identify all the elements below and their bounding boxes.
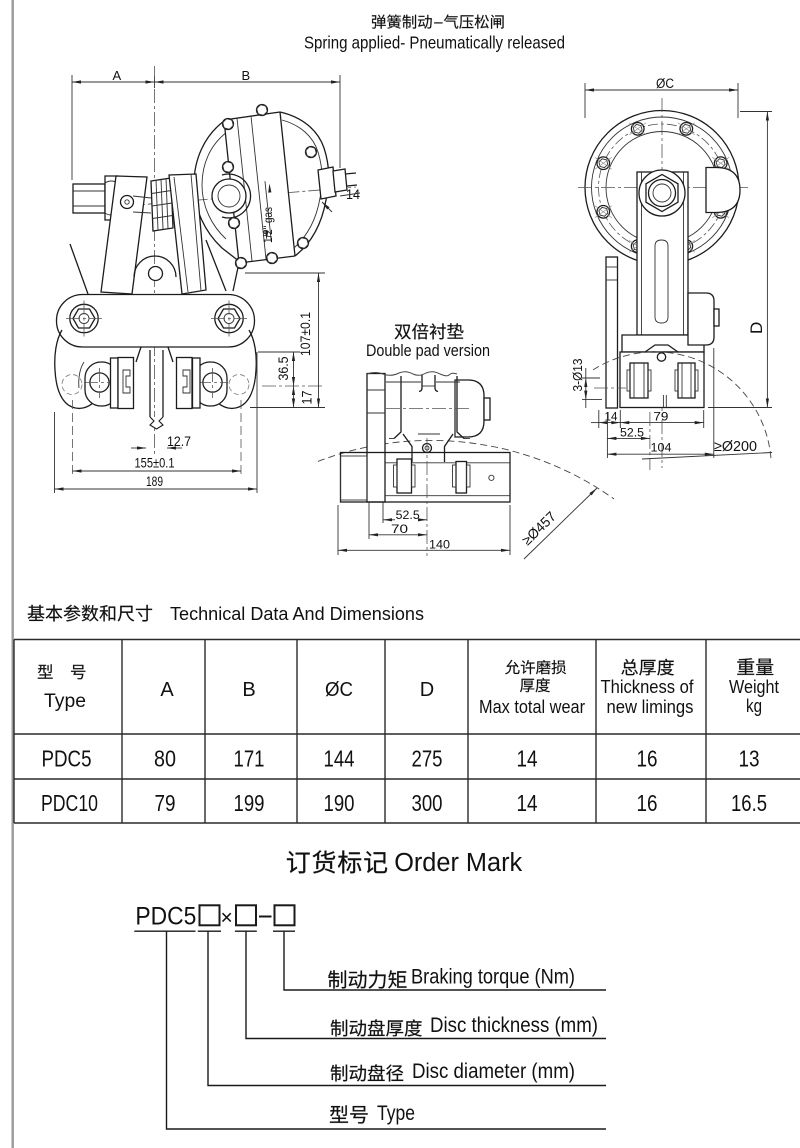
svg-text:190: 190 (324, 790, 355, 816)
svg-text:16.5: 16.5 (731, 790, 767, 816)
svg-text:Braking torque (Nm): Braking torque (Nm) (411, 966, 575, 989)
svg-text:79: 79 (653, 412, 668, 424)
svg-text:52.5: 52.5 (396, 510, 420, 522)
svg-text:14: 14 (517, 746, 538, 772)
svg-text:Double pad version: Double pad version (366, 341, 490, 360)
svg-text:52.5: 52.5 (620, 427, 644, 439)
svg-text:12.7: 12.7 (167, 434, 191, 449)
svg-text:Spring applied- Pneumatically: Spring applied- Pneumatically released (304, 33, 565, 53)
svg-text:D: D (420, 679, 434, 701)
svg-text:Disc diameter (mm): Disc diameter (mm) (412, 1060, 575, 1083)
svg-text:D: D (747, 322, 766, 334)
svg-text:B: B (242, 68, 251, 83)
svg-text:17: 17 (300, 391, 315, 405)
svg-text:PDC5: PDC5 (135, 903, 196, 931)
svg-text:A: A (113, 68, 122, 83)
svg-text:Max total wear: Max total wear (479, 696, 585, 717)
svg-text:Type: Type (377, 1102, 415, 1125)
svg-text:14: 14 (605, 412, 619, 424)
svg-text:107±0.1: 107±0.1 (298, 312, 313, 356)
svg-text:B: B (242, 679, 255, 701)
svg-text:3-Ø13: 3-Ø13 (570, 359, 585, 392)
svg-text:1/2" gas: 1/2" gas (263, 207, 275, 243)
svg-text:144: 144 (324, 746, 355, 772)
svg-text:140: 140 (429, 540, 450, 552)
svg-text:155±0.1: 155±0.1 (135, 456, 175, 471)
svg-text:79: 79 (155, 790, 176, 816)
svg-text:Technical Data And Dimensions: Technical Data And Dimensions (170, 603, 424, 624)
svg-text:14: 14 (517, 790, 538, 816)
svg-text:PDC5: PDC5 (42, 746, 92, 772)
svg-text:×: × (221, 907, 233, 930)
svg-text:kg: kg (746, 695, 762, 716)
svg-text:171: 171 (234, 746, 265, 772)
svg-text:Disc thickness (mm): Disc thickness (mm) (430, 1014, 598, 1037)
svg-text:300: 300 (412, 790, 443, 816)
svg-text:≥Ø200: ≥Ø200 (714, 439, 757, 455)
svg-text:13: 13 (739, 746, 760, 772)
svg-text:275: 275 (412, 746, 443, 772)
svg-text:PDC10: PDC10 (41, 790, 98, 816)
svg-text:Order Mark: Order Mark (394, 849, 522, 877)
svg-text:Type: Type (44, 690, 86, 712)
svg-text:16: 16 (637, 746, 658, 772)
svg-text:189: 189 (146, 474, 163, 489)
svg-text:ØC: ØC (325, 679, 353, 701)
svg-text:Thickness of: Thickness of (601, 676, 695, 697)
svg-text:70: 70 (391, 524, 408, 536)
svg-text:new limings: new limings (607, 696, 694, 717)
svg-text:ØC: ØC (656, 76, 674, 91)
svg-text:199: 199 (234, 790, 265, 816)
svg-text:Weight: Weight (729, 676, 779, 697)
svg-text:36.5: 36.5 (276, 357, 291, 381)
svg-text:80: 80 (154, 746, 176, 772)
svg-text:104: 104 (651, 443, 673, 455)
svg-text:16: 16 (637, 790, 658, 816)
svg-text:A: A (160, 679, 174, 701)
